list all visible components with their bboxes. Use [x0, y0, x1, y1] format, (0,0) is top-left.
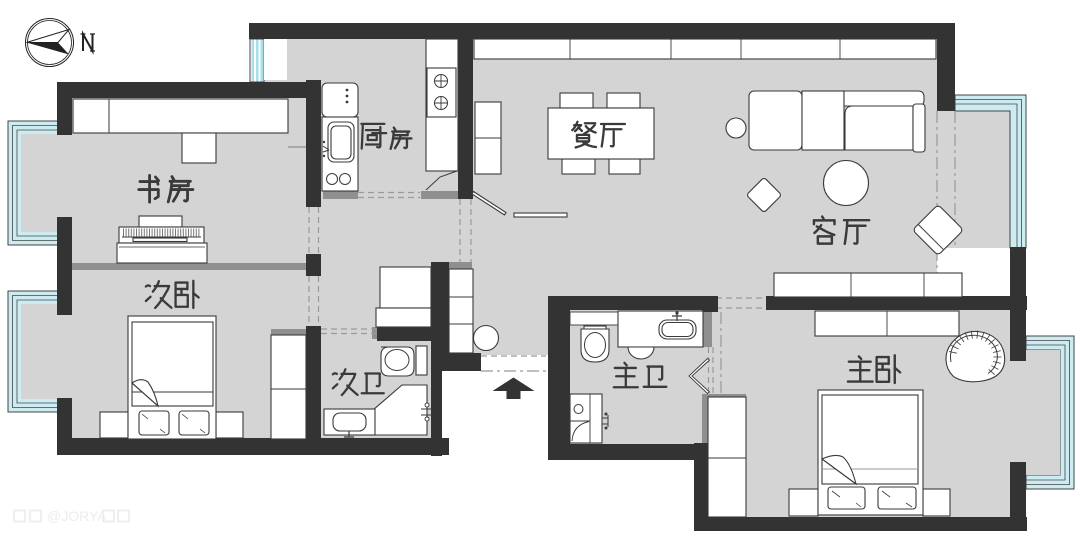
svg-text:@JORYA: @JORYA	[47, 508, 107, 524]
